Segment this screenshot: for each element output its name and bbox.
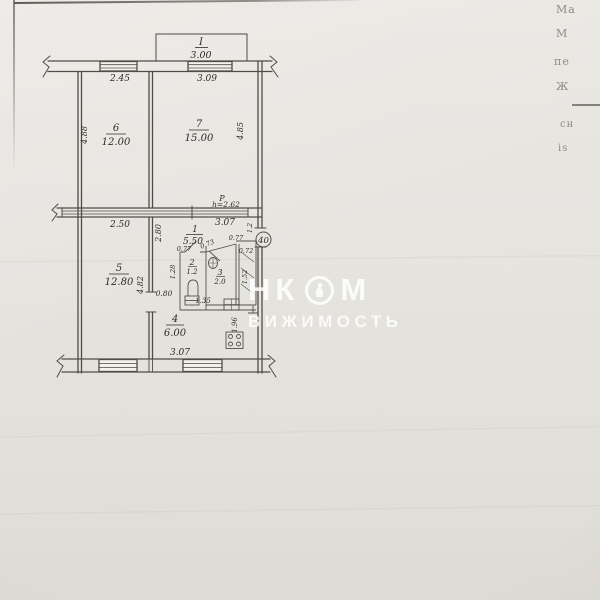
margin-fragment: пе (554, 55, 570, 68)
dim-window-top-right: 3.09 (197, 74, 217, 84)
dim-room7-depth: 4.85 (236, 122, 245, 141)
dim-077b: 0.77 (229, 234, 244, 242)
ceiling-height: h=2.62 (212, 200, 240, 209)
room2-area: 1.2 (186, 268, 198, 276)
dim-closet: 1.52 (241, 270, 249, 284)
dim-077a: 0.77 (177, 245, 192, 253)
room2-number: 2 (188, 258, 194, 267)
margin-fragment: is (558, 143, 568, 154)
dim-window-top-left: 2.45 (109, 74, 130, 84)
apartment-number-badge: 40 (256, 232, 271, 247)
dim-room5-depth: 4.82 (136, 276, 145, 295)
dim-bath-width: 1.35 (195, 297, 211, 305)
room3-number: 3 (217, 268, 222, 277)
room4-area: 6.00 (164, 328, 187, 339)
room3-area: 2.0 (213, 278, 226, 286)
dim-mid-right: 3.07 (215, 218, 235, 228)
margin-fragment: Ж (556, 80, 569, 93)
dim-072: 0.72 (239, 247, 253, 255)
walls (43, 34, 278, 377)
room5-number: 5 (116, 263, 122, 274)
apartment-number: 40 (257, 236, 269, 246)
room6-number: 6 (113, 123, 120, 134)
dim-hall-depth: 2.80 (154, 224, 163, 243)
dim-door: 0.80 (156, 289, 173, 298)
balcony-number: I (198, 37, 204, 48)
floor-plan-drawing: 40 I 3.00 6 12.00 7 15.00 1 5.50 2 1.2 3… (0, 0, 600, 600)
room7-number: 7 (196, 119, 203, 130)
dimension-labels: 2.45 3.09 4.88 4.85 Р h=2.62 2.50 3.07 2… (80, 74, 254, 358)
room4-number: 4 (171, 314, 178, 325)
margin-fragment: М (556, 27, 568, 40)
dim-room6-depth: 4.88 (80, 126, 89, 145)
dim-kitchen-depth: 1.96 (231, 317, 239, 333)
room5-area: 12.80 (105, 277, 134, 288)
dim-128: 1.28 (169, 265, 177, 279)
balcony-area: 3.00 (190, 50, 211, 61)
dim-mid-left: 2.50 (109, 220, 130, 230)
margin-fragment: сн (560, 119, 574, 130)
dim-entry-niche: 1.2 (246, 223, 254, 233)
room7-area: 15.00 (185, 133, 214, 144)
room6-area: 12.00 (102, 137, 131, 148)
dim-window-bottom: 3.07 (170, 348, 190, 358)
margin-fragment: Ма (556, 3, 576, 16)
margin-rule (572, 104, 600, 106)
scanned-floor-plan-page: 40 I 3.00 6 12.00 7 15.00 1 5.50 2 1.2 3… (0, 0, 600, 600)
room1-number: 1 (192, 225, 198, 235)
